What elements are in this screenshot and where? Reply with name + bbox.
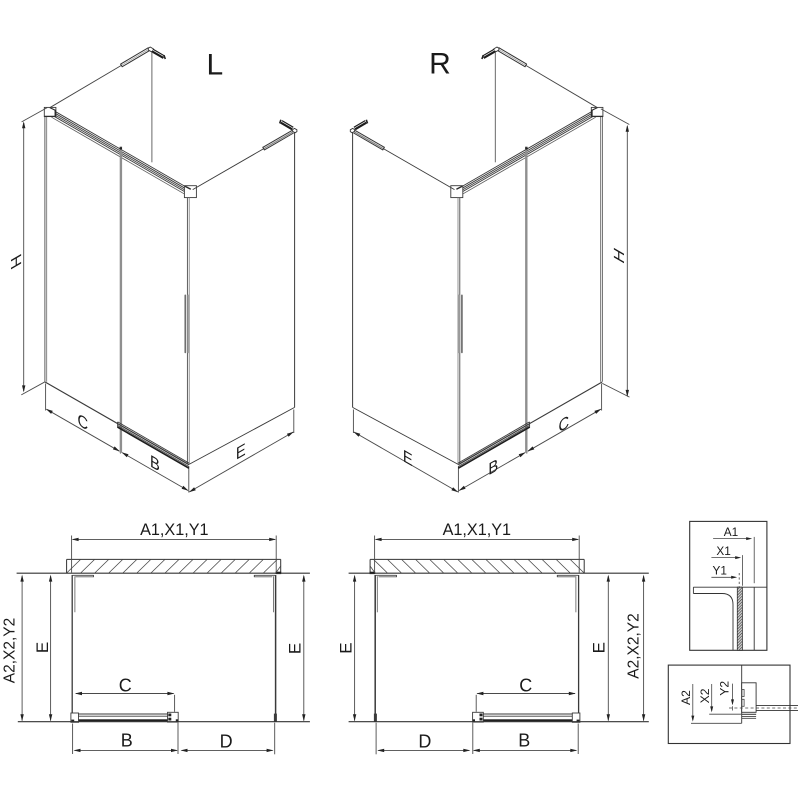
svg-text:A2,X2,Y2: A2,X2,Y2 — [2, 618, 19, 684]
svg-text:C: C — [519, 675, 532, 695]
svg-text:A1,X1,Y1: A1,X1,Y1 — [140, 521, 208, 539]
svg-text:L: L — [206, 48, 223, 81]
svg-text:D: D — [418, 732, 431, 752]
svg-text:D: D — [220, 732, 233, 752]
svg-text:E: E — [589, 642, 608, 653]
svg-text:E: E — [336, 642, 355, 653]
svg-text:R: R — [429, 48, 451, 81]
svg-text:B: B — [121, 731, 133, 751]
svg-text:B: B — [518, 731, 530, 751]
svg-text:Y1: Y1 — [713, 564, 727, 578]
svg-text:A2: A2 — [679, 690, 693, 705]
svg-text:X1: X1 — [716, 544, 730, 558]
svg-text:A1: A1 — [724, 525, 738, 539]
svg-text:A1,X1,Y1: A1,X1,Y1 — [443, 521, 511, 539]
svg-text:E: E — [33, 642, 52, 653]
svg-text:Y2: Y2 — [717, 681, 731, 696]
svg-text:C: C — [119, 675, 132, 695]
svg-text:A2,X2,Y2: A2,X2,Y2 — [625, 613, 642, 679]
svg-text:X2: X2 — [698, 688, 712, 703]
svg-text:E: E — [286, 643, 305, 654]
